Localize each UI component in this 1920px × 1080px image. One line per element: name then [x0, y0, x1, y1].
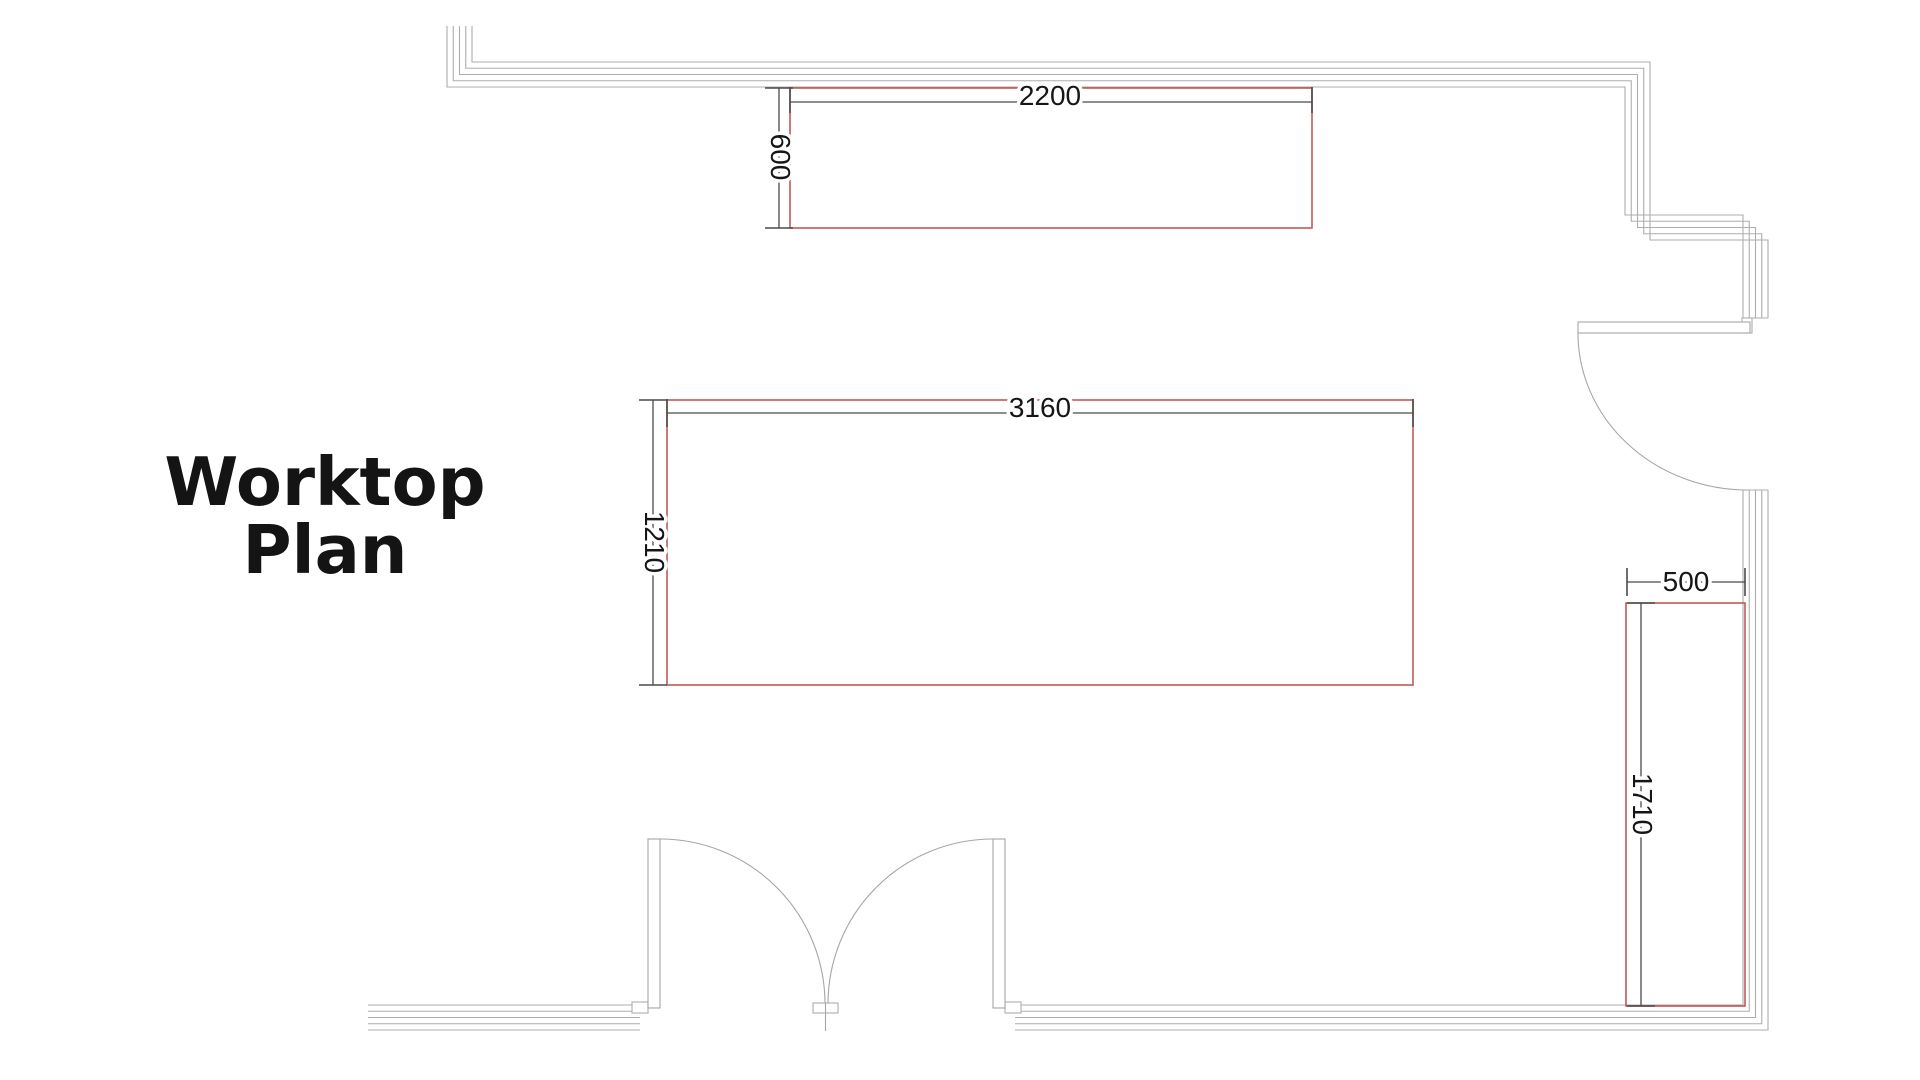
dimension-2200: 2200 — [790, 80, 1312, 113]
door-swing-arc-left — [660, 839, 825, 1004]
door-swing-arc-right — [828, 839, 993, 1004]
dimension-1710: 1710 — [1627, 603, 1658, 1006]
side-worktop-length-dimension: 1710 — [1627, 773, 1658, 835]
dimension-600: 600 — [765, 88, 796, 228]
door-leaf-right — [993, 839, 1005, 1008]
island-worktop — [667, 400, 1413, 685]
dimensions: 2200 600 3160 1210 — [639, 80, 1745, 1006]
worktops — [667, 88, 1745, 1006]
dimension-500: 500 — [1627, 566, 1745, 597]
dimension-1210: 1210 — [639, 400, 670, 685]
worktop-plan-page: Worktop Plan — [0, 0, 1920, 1080]
door-jamb — [632, 1002, 648, 1013]
top-worktop-width-dimension: 2200 — [1019, 80, 1081, 111]
door-leaf — [1578, 322, 1750, 333]
island-worktop-width-dimension: 3160 — [1009, 392, 1071, 423]
side-worktop-width-dimension: 500 — [1663, 566, 1710, 597]
island-worktop-depth-dimension: 1210 — [639, 511, 670, 573]
door-jamb — [1005, 1002, 1021, 1013]
door-leaf-left — [648, 839, 660, 1008]
wall-outline — [368, 26, 1768, 1030]
floor-plan-canvas: 2200 600 3160 1210 — [0, 0, 1920, 1080]
door-swing-arc — [1578, 333, 1748, 490]
top-worktop-depth-dimension: 600 — [765, 134, 796, 181]
single-door — [1578, 322, 1750, 490]
double-door — [648, 839, 1005, 1031]
dimension-3160: 3160 — [667, 392, 1413, 427]
